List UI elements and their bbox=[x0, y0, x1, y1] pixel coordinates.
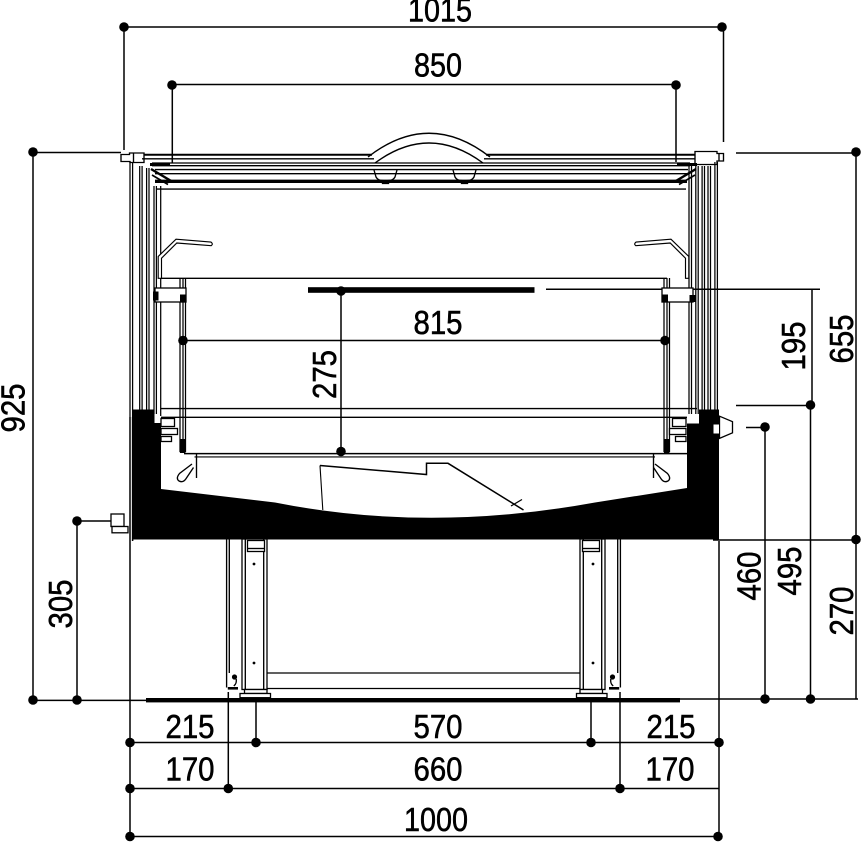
svg-text:215: 215 bbox=[166, 708, 215, 745]
svg-text:1000: 1000 bbox=[404, 801, 468, 838]
svg-text:305: 305 bbox=[42, 580, 79, 629]
svg-text:275: 275 bbox=[306, 350, 343, 399]
svg-text:215: 215 bbox=[647, 708, 696, 745]
svg-text:270: 270 bbox=[823, 587, 860, 636]
svg-text:170: 170 bbox=[166, 751, 215, 788]
svg-text:460: 460 bbox=[731, 552, 768, 601]
svg-text:495: 495 bbox=[771, 547, 808, 596]
svg-text:925: 925 bbox=[0, 384, 32, 433]
svg-text:195: 195 bbox=[775, 322, 812, 371]
svg-text:815: 815 bbox=[414, 304, 463, 341]
svg-text:660: 660 bbox=[414, 751, 463, 788]
svg-text:1015: 1015 bbox=[408, 0, 472, 29]
svg-text:170: 170 bbox=[646, 751, 695, 788]
svg-text:655: 655 bbox=[823, 315, 860, 364]
svg-text:850: 850 bbox=[414, 47, 462, 84]
svg-text:570: 570 bbox=[414, 708, 463, 745]
